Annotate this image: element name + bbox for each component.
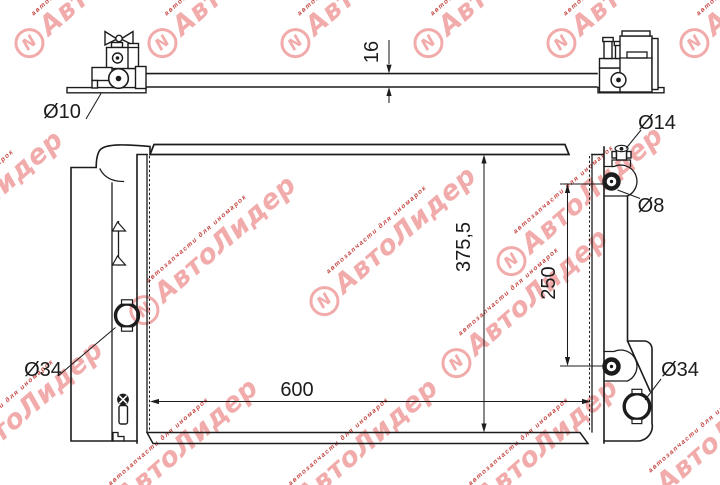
tank-foot-notch xyxy=(113,433,124,442)
inlet-port-circle xyxy=(116,304,139,327)
clip-tab-lower xyxy=(113,256,126,265)
arrow-down-icon xyxy=(481,424,486,433)
mount-hole-bottom-dot xyxy=(610,365,613,368)
leader-line xyxy=(618,190,641,199)
drain-plug-stem xyxy=(119,406,128,425)
right-tank-outline xyxy=(604,196,652,441)
dim-16-label: 16 xyxy=(361,41,383,63)
fitting-neck xyxy=(112,43,123,48)
right-tank xyxy=(604,145,652,441)
right-side-plate-outer xyxy=(592,147,604,443)
label-overflow-pipe: Ø14 xyxy=(626,112,676,149)
dimension-core-width: 600 xyxy=(150,379,591,404)
front-view: 375,5 250 600 Ø14 Ø8 xyxy=(24,112,699,444)
reservoir-cap xyxy=(622,31,650,36)
leader-line xyxy=(58,328,116,377)
dim-600-label: 600 xyxy=(280,379,313,401)
clip-tab-upper xyxy=(113,222,126,231)
top-view: 16 Ø10 xyxy=(43,31,664,123)
pipe-stub-1 xyxy=(604,40,612,59)
dia-8-label: Ø8 xyxy=(638,195,665,217)
arrow-left-icon xyxy=(150,399,159,404)
dimension-core-thickness: 16 xyxy=(361,40,392,103)
arrow-down-icon xyxy=(565,357,570,366)
dia-34-right-label: Ø34 xyxy=(661,359,699,381)
inlet-tab-bottom xyxy=(122,327,133,331)
label-inlet-pipe: Ø34 xyxy=(24,328,115,382)
arrow-up-icon xyxy=(565,184,570,193)
mount-hole-top-dot xyxy=(610,180,613,183)
label-outlet-pipe: Ø34 xyxy=(645,359,699,400)
pipe-stub-1-cap xyxy=(603,38,613,42)
fitting-boss-dot xyxy=(616,78,621,83)
fitting-bolt-dot xyxy=(116,56,120,60)
leader-line xyxy=(86,94,101,120)
arrow-down-icon xyxy=(386,65,391,74)
drain-plug xyxy=(117,394,129,424)
radiator-technical-drawing: автозапчасти для иномарокNАвтоЛидеравтоз… xyxy=(0,0,720,485)
dia-10-label: Ø10 xyxy=(43,101,81,123)
fitting-bar-joint xyxy=(136,67,147,89)
filler-neck-curve xyxy=(100,169,124,182)
extension-lines xyxy=(560,184,603,366)
fitting-boss-dot xyxy=(116,76,122,82)
dim-250-label: 250 xyxy=(538,266,560,299)
reservoir-step xyxy=(652,39,658,90)
bottom-plate xyxy=(147,433,588,444)
top-plate xyxy=(150,145,569,155)
dimension-overall-height: 375,5 xyxy=(453,155,487,433)
arrow-right-icon xyxy=(582,399,591,404)
drain-tube xyxy=(67,88,146,93)
inlet-tab-top xyxy=(122,300,133,304)
outlet-tab-top xyxy=(632,389,642,393)
label-drain-pipe: Ø10 xyxy=(43,94,101,124)
overflow-tube-dot xyxy=(620,147,624,151)
outlet-port-circle xyxy=(624,394,650,420)
dia-34-left-label: Ø34 xyxy=(24,359,62,381)
left-side-plate-outer xyxy=(137,155,147,444)
right-fitting-top-view xyxy=(598,31,664,93)
overflow-fitting xyxy=(612,145,631,166)
dimension-mount-spacing: 250 xyxy=(538,184,603,366)
left-tank xyxy=(71,145,150,441)
arrow-up-icon xyxy=(386,87,391,96)
arrow-up-icon xyxy=(481,155,486,164)
drawing-canvas: 16 Ø10 xyxy=(0,0,720,485)
dia-14-label: Ø14 xyxy=(638,112,676,134)
dim-375-label: 375,5 xyxy=(453,222,475,272)
wing-nut-center xyxy=(116,35,122,41)
flange-leg xyxy=(92,81,98,89)
left-fitting-top-view xyxy=(67,32,146,93)
outlet-tab-bottom xyxy=(632,419,642,423)
label-mount-hole: Ø8 xyxy=(618,190,665,217)
leader-line xyxy=(645,379,661,400)
left-tank-outline xyxy=(71,145,150,441)
